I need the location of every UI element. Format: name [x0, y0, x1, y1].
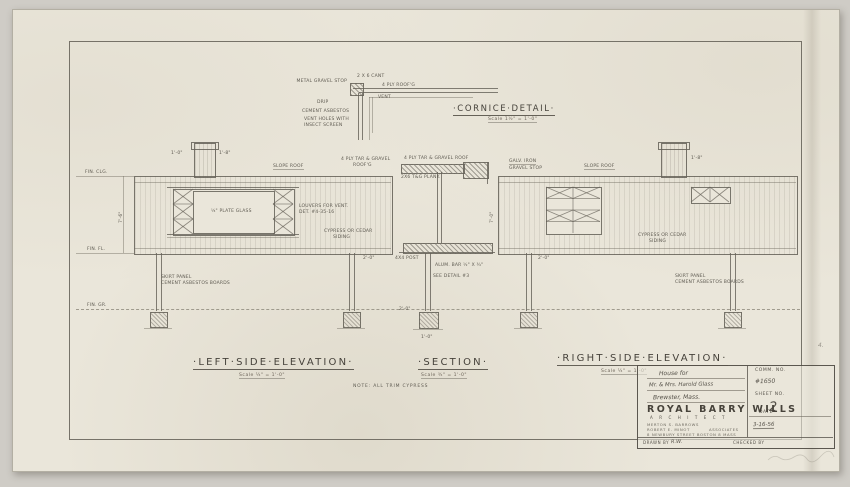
- left-elevation-scale: Scale ¼" = 1'-0": [239, 373, 285, 379]
- fascia-line: [369, 97, 370, 140]
- pencil-scribble: [766, 452, 836, 464]
- chimney-dim: 1'-0": [171, 151, 183, 156]
- window-muntins: [546, 187, 600, 233]
- entry-rule: [647, 402, 745, 403]
- entry-rule: [647, 378, 745, 379]
- plate-glass-label: ¼" Plate Glass: [211, 209, 252, 214]
- cornice-detail-scale: Scale 1½" = 1'-0": [488, 117, 537, 123]
- sheet-no-label: SHEET NO.: [755, 392, 785, 397]
- footing-base-line: [718, 328, 746, 329]
- siding-label: Cypress or Cedar: [638, 233, 687, 238]
- roof-label: 4 Ply Tar & Gravel Roof: [404, 156, 469, 161]
- fascia-line: [362, 93, 363, 140]
- plank-label: 2x6 T&G Plank: [401, 175, 440, 180]
- drawing-sheet: Metal Gravel Stop 2 x 6 Cant 4 Ply Roof'…: [12, 9, 840, 472]
- skirt-label: Skirt Panel: [161, 275, 192, 280]
- comm-no-label: COMM. NO.: [755, 368, 786, 373]
- gravel-stop-label: Galv. Iron: [509, 159, 536, 165]
- skirt-label: Cement Asbestos Boards: [161, 281, 230, 286]
- post: [730, 253, 736, 311]
- post-dim: 2'-0": [363, 256, 375, 261]
- post-dim: 2'-0": [538, 256, 550, 261]
- entry-rule: [647, 390, 745, 391]
- annotation: Vent holes with: [304, 117, 349, 122]
- annotation: Vent: [378, 95, 391, 100]
- footing: [724, 312, 742, 328]
- sill-course-line: [134, 248, 391, 249]
- post: [156, 253, 162, 311]
- chimney-cap: [658, 142, 690, 150]
- fin-clg-label: Fin. Clg.: [85, 170, 108, 175]
- siding-label: Siding: [649, 239, 666, 244]
- section-scale: Scale ¾" = 1'-0": [421, 373, 467, 379]
- floor-edge-line: [399, 252, 495, 253]
- roof-line: [359, 92, 498, 93]
- grade-line: [76, 309, 800, 310]
- window-head-line: [167, 187, 299, 188]
- louver-panel-right: [273, 189, 293, 234]
- mullion-line: [437, 172, 438, 243]
- drawn-by-entry: R.W.: [671, 439, 682, 445]
- scanned-drawing-page: Metal Gravel Stop 2 x 6 Cant 4 Ply Roof'…: [0, 0, 850, 487]
- slope-roof-label: Slope Roof: [273, 164, 304, 170]
- footing: [343, 312, 361, 328]
- footing-base-line: [413, 329, 443, 330]
- title-block-divider: [747, 365, 748, 437]
- post: [526, 253, 532, 311]
- annotation: insect screen: [304, 123, 343, 128]
- window-sill-line: [167, 234, 299, 235]
- annotation: 2 x 6 Cant: [357, 74, 384, 79]
- fascia-edge: [487, 162, 488, 184]
- window-sill-line: [167, 237, 299, 238]
- siding-label: Cypress or Cedar: [324, 229, 373, 234]
- wall-band: [498, 176, 798, 255]
- fascia-line: [358, 93, 359, 140]
- gravel-stop-label: Gravel Stop: [509, 166, 542, 171]
- drawn-by-label: DRAWN BY: [643, 440, 669, 445]
- sill-course-line: [498, 248, 796, 249]
- bottom-row-rule: [637, 437, 833, 438]
- alum-bar-label: Alum. bar ½" x ¾": [435, 263, 483, 268]
- chimney-cap: [191, 142, 219, 150]
- window-muntins: [691, 187, 729, 202]
- siding-label: Siding: [333, 235, 350, 240]
- project-entry: House for: [659, 370, 688, 377]
- annotation: Metal Gravel Stop: [291, 79, 347, 84]
- footing-base-line: [514, 328, 542, 329]
- louvers-label: Louvers for vent.: [299, 204, 349, 209]
- footing-base-line: [337, 328, 365, 329]
- fascia-line: [372, 97, 373, 133]
- firm-name: ROYAL BARRY WILLS: [647, 404, 797, 415]
- fascia-line: [134, 182, 391, 183]
- date-entry: 3-16-56: [753, 422, 775, 429]
- comm-no-entry: #1650: [755, 378, 775, 385]
- post-dim: 2'-0": [399, 307, 411, 312]
- height-dim: 7'-0": [490, 211, 495, 223]
- dim-line: [123, 176, 124, 253]
- roof-label: 4 Ply Tar & Gravel: [341, 157, 390, 162]
- slope-roof-label: Slope Roof: [584, 164, 615, 170]
- footing-base-line: [144, 328, 172, 329]
- ceiling-ref-line: [76, 176, 134, 177]
- firm-address: 8 NEWBURY STREET BOSTON 8 MASS: [647, 432, 736, 437]
- footing-dim: 1'-0": [421, 335, 433, 340]
- annotation: 4 Ply Roof'g: [382, 83, 415, 88]
- roof-label: Roof'g: [353, 163, 372, 168]
- mullion-line: [441, 172, 442, 243]
- fascia-block: [463, 162, 489, 179]
- annotation: Drip: [317, 100, 328, 105]
- see-detail-label: See Detail #3: [433, 274, 469, 279]
- client-entry: Mr. & Mrs. Harold Glass: [649, 382, 713, 389]
- louver-panel-left: [173, 189, 193, 234]
- date-rule: [749, 416, 831, 417]
- floor-ref-line: [76, 253, 134, 254]
- skirt-label: Skirt Panel: [675, 274, 706, 279]
- margin-pencil-note: 4.: [818, 342, 824, 349]
- firm-title: A R C H I T E C T: [650, 415, 727, 420]
- footing: [150, 312, 168, 328]
- louvers-label: Det. #4-35-16: [299, 210, 334, 215]
- section-title: ·Section·: [418, 357, 488, 370]
- fin-gr-label: Fin. Gr.: [87, 303, 107, 308]
- footing: [520, 312, 538, 328]
- cornice-detail-title: ·Cornice·Detail·: [453, 104, 555, 116]
- checked-by-label: CHECKED BY: [733, 440, 765, 445]
- post-label: 4x4 Post: [395, 256, 419, 261]
- roof-slab: [401, 164, 465, 174]
- annotation: Cement Asbestos: [302, 109, 349, 114]
- post: [349, 253, 355, 311]
- general-note: Note: All Trim Cypress: [353, 384, 428, 389]
- town-entry: Brewster, Mass.: [653, 394, 700, 402]
- chimney-dim: 1'-8": [691, 156, 703, 161]
- fin-fl-label: Fin. Fl.: [87, 247, 105, 252]
- post: [425, 253, 431, 311]
- footing: [419, 312, 439, 329]
- chimney-dim: 1'-8": [219, 151, 231, 156]
- roof-line: [353, 88, 498, 89]
- left-elevation-title: ·Left·Side·Elevation·: [193, 357, 354, 370]
- fascia-line: [498, 182, 796, 183]
